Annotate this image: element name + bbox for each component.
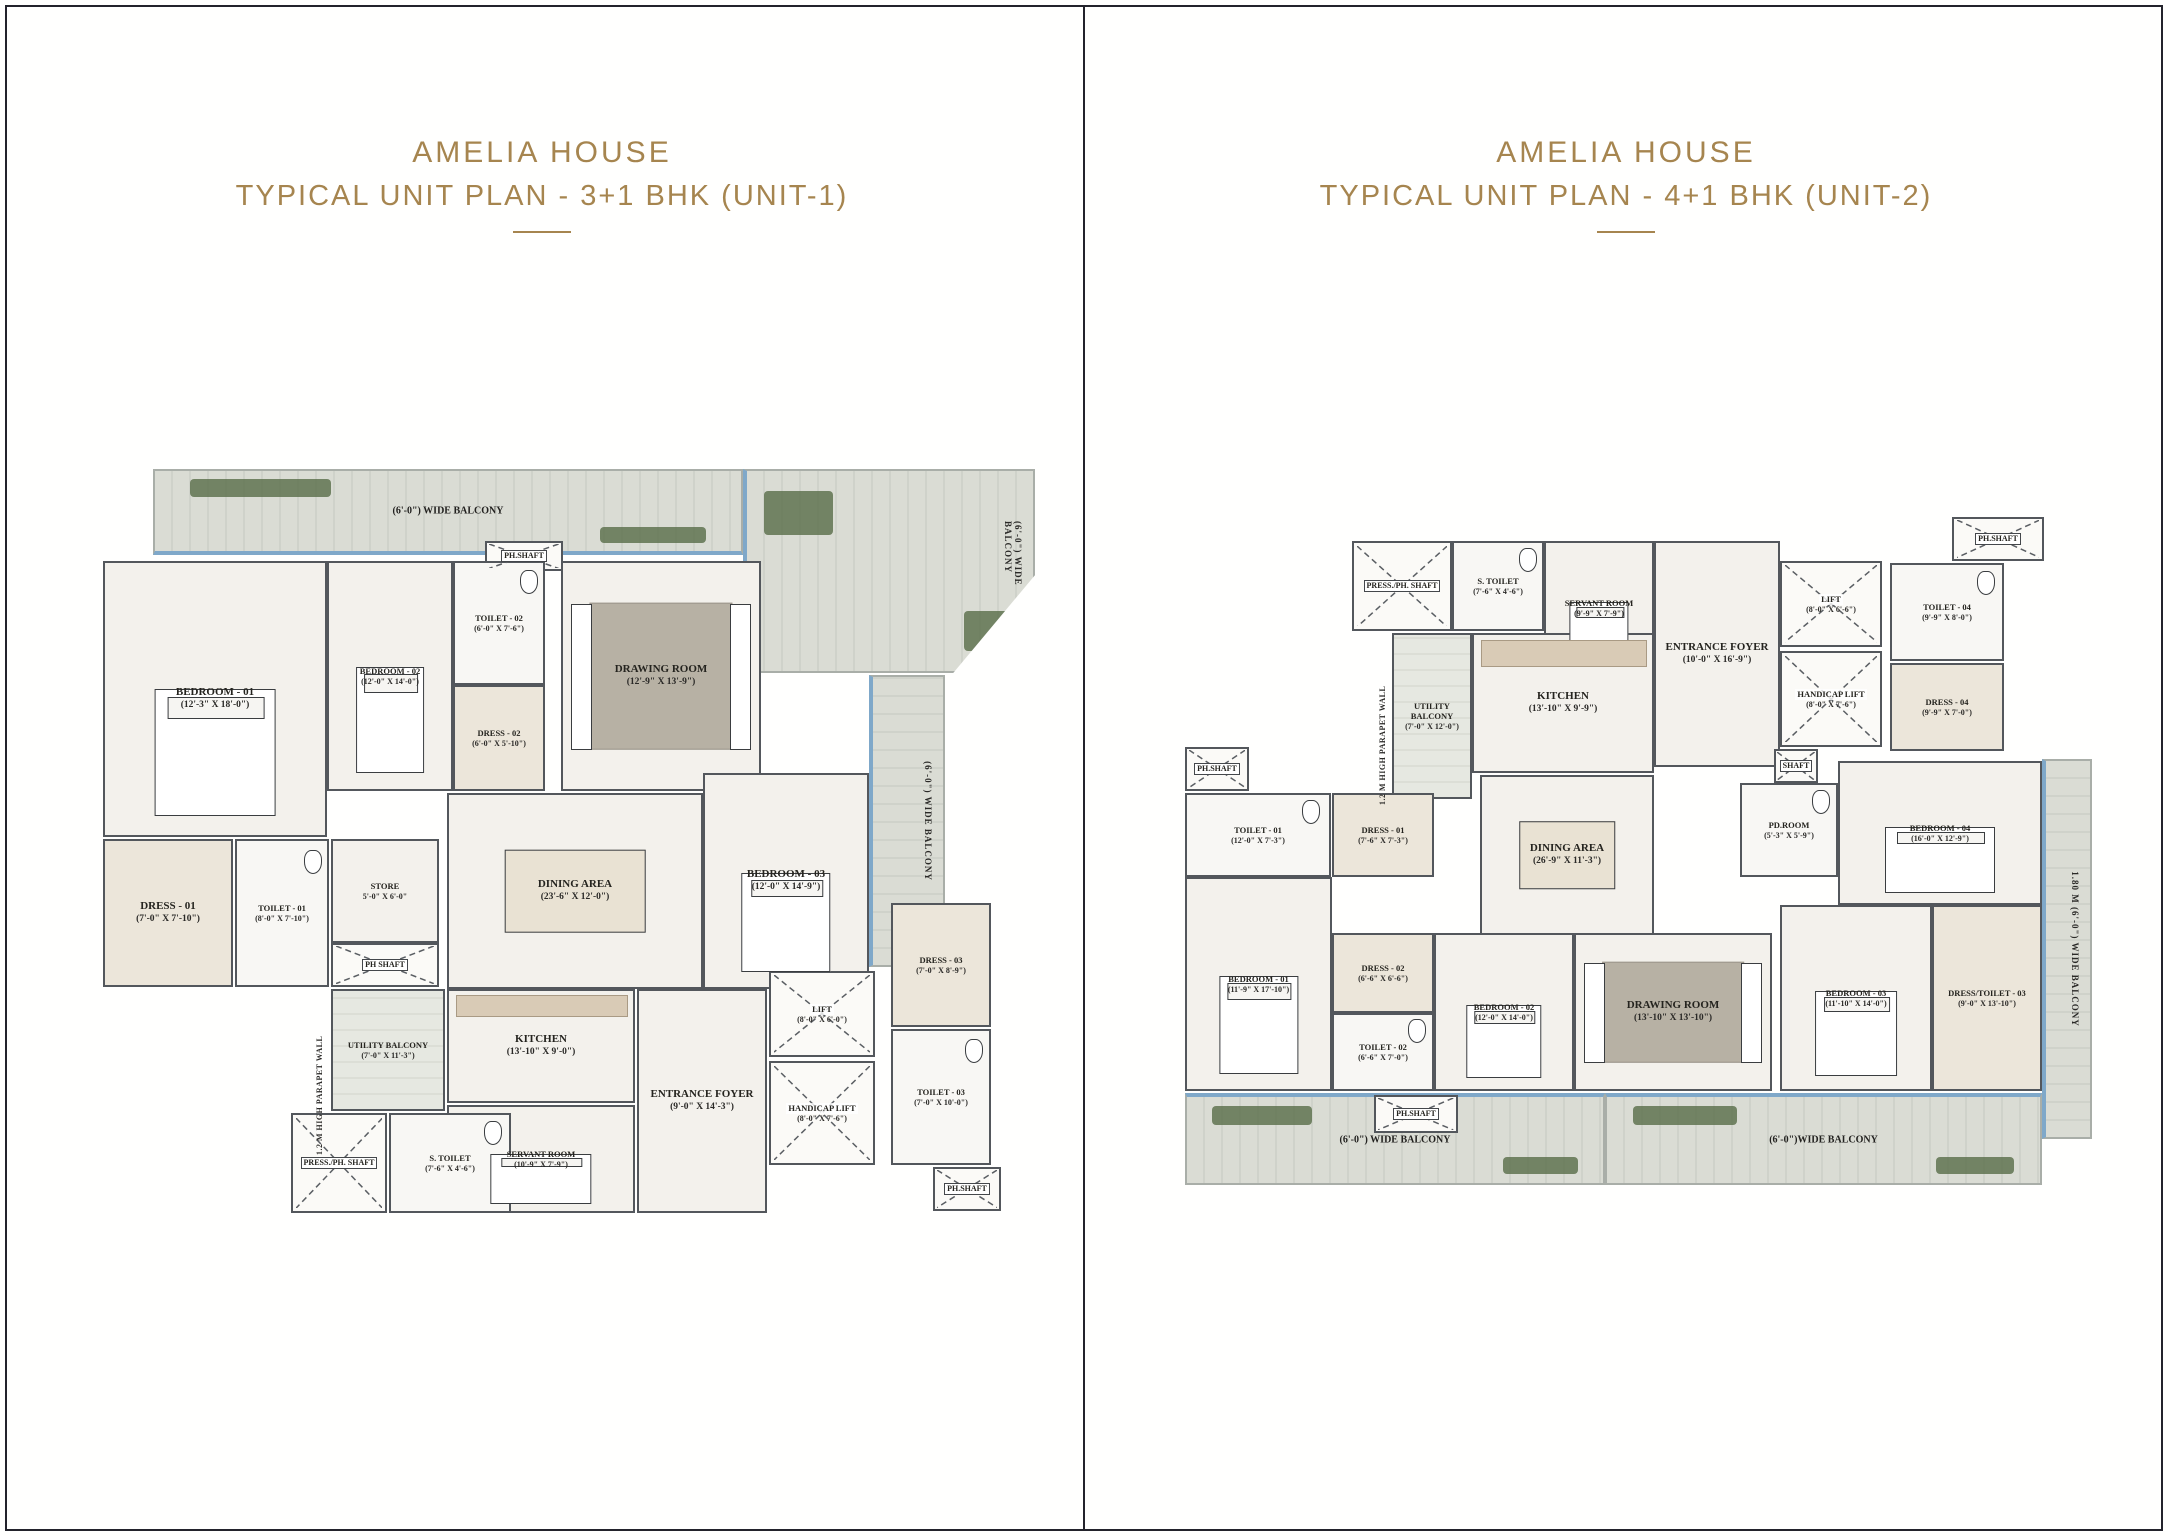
room-dimensions: (10'-9" X 7'-9") xyxy=(514,1160,568,1170)
room-name: TOILET - 02 xyxy=(1359,1042,1407,1053)
planter-icon xyxy=(1212,1106,1312,1125)
room-drawing-room: DRAWING ROOM(13'-10" X 13'-10") xyxy=(1574,933,1772,1091)
toilet-icon xyxy=(520,570,538,594)
room-name: HANDICAP LIFT xyxy=(1795,689,1866,700)
room-name: DRESS - 02 xyxy=(478,728,521,739)
room-handicap-lift: HANDICAP LIFT(8'-0" X 7'-6") xyxy=(1780,651,1882,747)
toilet-icon xyxy=(1977,571,1995,595)
room-dress-02: DRESS - 02(6'-6" X 6'-6") xyxy=(1332,933,1434,1013)
room-dimensions: (8'-0" X 6'-6") xyxy=(1806,605,1856,615)
room-name: SERVANT ROOM xyxy=(1565,598,1634,609)
room-name: DINING AREA xyxy=(538,878,612,892)
sofa-icon xyxy=(1741,963,1762,1064)
room-name: HANDICAP LIFT xyxy=(786,1103,857,1114)
room-dimensions: (10'-0" X 16'-9") xyxy=(1683,655,1752,666)
unit2-header: AMELIA HOUSE TYPICAL UNIT PLAN - 4+1 BHK… xyxy=(1084,136,2168,233)
room-entrance-foyer: ENTRANCE FOYER(10'-0" X 16'-9") xyxy=(1654,541,1780,767)
room-press-ph-shaft: PRESS./PH. SHAFT xyxy=(1352,541,1452,631)
room-name: BEDROOM - 03 xyxy=(747,868,825,882)
room-bedroom-01: BEDROOM - 01(12'-3" X 18'-0") xyxy=(103,561,327,837)
room-name: SHAFT xyxy=(1780,760,1813,772)
balcony-label-vertical: (6'-0") WIDE BALCONY xyxy=(923,761,933,881)
room-dress-01: DRESS - 01(7'-0" X 7'-10") xyxy=(103,839,233,987)
room-name: PD.ROOM xyxy=(1769,820,1810,831)
planter-icon xyxy=(190,479,331,497)
balcony-label: (6'-0") WIDE BALCONY xyxy=(1340,1135,1451,1146)
room-dining-area: DINING AREA(23'-6" X 12'-0") xyxy=(447,793,703,989)
room-ph-shaft: PH.SHAFT xyxy=(1185,747,1249,791)
room-dimensions: (23'-6" X 12'-0") xyxy=(541,892,610,903)
unit1-title: AMELIA HOUSE xyxy=(0,136,1084,170)
kitchen-counter-icon xyxy=(1481,640,1647,666)
brochure-page: { "colors":{"accent_gold":"#a6854f","wal… xyxy=(0,0,2168,1536)
sofa-icon xyxy=(571,604,593,751)
room-name: UTILITY BALCONY xyxy=(1394,701,1470,722)
balcony-deck: (6'-0") WIDE BALCONY xyxy=(153,469,743,555)
planter-icon xyxy=(600,527,705,543)
room-kitchen: KITCHEN(13'-10" X 9'-9") xyxy=(1472,633,1654,773)
room-name: PH.SHAFT xyxy=(501,550,547,562)
room-dimensions: (12'-9" X 13'-9") xyxy=(627,677,696,688)
floorplan-unit2: (6'-0") WIDE BALCONY(6'-0")WIDE BALCONY1… xyxy=(1180,505,2095,1190)
room-name: TOILET - 04 xyxy=(1923,602,1971,613)
room-dimensions: (16'-0" X 12'-9") xyxy=(1911,834,1969,844)
room-drawing-room: DRAWING ROOM(12'-9" X 13'-9") xyxy=(561,561,761,791)
room-name: PH SHAFT xyxy=(362,959,408,971)
room-dimensions: (8'-0" X 7'-6") xyxy=(797,1114,847,1124)
panel-divider xyxy=(1083,5,1085,1531)
room-name: PH.SHAFT xyxy=(1393,1108,1439,1120)
balcony-label: (6'-0") WIDE BALCONY xyxy=(393,506,504,517)
room-press-ph-shaft: PRESS./PH. SHAFT xyxy=(291,1113,387,1213)
room-dimensions: (6'-0" X 5'-10") xyxy=(472,739,526,749)
room-dimensions: (5'-3" X 5'-9") xyxy=(1764,831,1814,841)
room-dimensions: (9'-0" X 14'-3") xyxy=(670,1102,734,1113)
room-pd-room: PD.ROOM(5'-3" X 5'-9") xyxy=(1740,783,1838,877)
room-toilet-01: TOILET - 01(12'-0" X 7'-3") xyxy=(1185,793,1331,877)
room-name: LIFT xyxy=(810,1004,834,1015)
room-dimensions: (6'-0" X 7'-6") xyxy=(474,624,524,634)
room-dimensions: (13'-10" X 9'-0") xyxy=(507,1047,576,1058)
unit1-header: AMELIA HOUSE TYPICAL UNIT PLAN - 3+1 BHK… xyxy=(0,136,1084,233)
parapet-wall-label: 1.2 M HIGH PARAPET WALL xyxy=(315,995,324,1155)
panel-unit1: AMELIA HOUSE TYPICAL UNIT PLAN - 3+1 BHK… xyxy=(0,0,1084,1536)
room-bedroom-02: BEDROOM - 02(12'-0" X 14'-0") xyxy=(327,561,453,791)
balcony-label-vertical: (6'-0") WIDE BALCONY xyxy=(1003,521,1023,621)
room-entrance-foyer: ENTRANCE FOYER(9'-0" X 14'-3") xyxy=(637,989,767,1213)
room-name: TOILET - 01 xyxy=(1234,825,1282,836)
toilet-icon xyxy=(484,1121,502,1145)
toilet-icon xyxy=(1408,1019,1426,1043)
room-name: TOILET - 01 xyxy=(258,903,306,914)
room-dimensions: (7'-6" X 7'-3") xyxy=(1358,836,1408,846)
room-dimensions: (9'-9" X 7'-0") xyxy=(1922,708,1972,718)
toilet-icon xyxy=(1812,790,1830,814)
room-dimensions: (6'-6" X 7'-0") xyxy=(1358,1053,1408,1063)
unit1-subtitle: TYPICAL UNIT PLAN - 3+1 BHK (UNIT-1) xyxy=(0,180,1084,213)
room-dress-02: DRESS - 02(6'-0" X 5'-10") xyxy=(453,685,545,791)
room-dimensions: (11'-9" X 17'-10") xyxy=(1228,985,1289,995)
planter-icon xyxy=(964,611,1015,651)
room-name: PRESS./PH. SHAFT xyxy=(301,1157,378,1169)
room-name: PRESS./PH. SHAFT xyxy=(1364,580,1441,592)
room-name: DINING AREA xyxy=(1530,842,1604,856)
room-dimensions: (13'-10" X 9'-9") xyxy=(1529,704,1598,715)
room-dimensions: (9'-9" X 8'-0") xyxy=(1922,613,1972,623)
room-dimensions: (7'-0" X 7'-10") xyxy=(136,914,200,925)
room-name: S. TOILET xyxy=(1477,576,1518,587)
room-name: BEDROOM - 03 xyxy=(1826,988,1886,999)
room-dimensions: (12'-0" X 14'-0") xyxy=(1475,1013,1533,1023)
sofa-icon xyxy=(730,604,752,751)
room-bedroom-04: BEDROOM - 04(16'-0" X 12'-9") xyxy=(1838,761,2042,905)
room-toilet-01: TOILET - 01(8'-0" X 7'-10") xyxy=(235,839,329,987)
balcony-deck: (6'-0")WIDE BALCONY xyxy=(1605,1093,2042,1185)
room-dimensions: (8'-0" X 6'-0") xyxy=(797,1015,847,1025)
room-toilet-02: TOILET - 02(6'-0" X 7'-6") xyxy=(453,561,545,685)
room-kitchen: KITCHEN(13'-10" X 9'-0") xyxy=(447,989,635,1103)
toilet-icon xyxy=(1519,548,1537,572)
room-dress-03: DRESS - 03(7'-0" X 8'-9") xyxy=(891,903,991,1027)
room-name: DRESS/TOILET - 03 xyxy=(1948,988,2026,999)
room-bedroom-02: BEDROOM - 02(12'-0" X 14'-0") xyxy=(1434,933,1574,1091)
room-dimensions: (7'-6" X 4'-6") xyxy=(1473,587,1523,597)
floorplan-unit1: (6'-0") WIDE BALCONY(6'-0") WIDE BALCONY… xyxy=(95,455,1040,1215)
room-name: TOILET - 02 xyxy=(475,613,523,624)
room-name: ENTRANCE FOYER xyxy=(651,1088,754,1102)
room-name: LIFT xyxy=(1819,594,1843,605)
room-name: KITCHEN xyxy=(1537,690,1589,704)
room-name: DRESS - 04 xyxy=(1926,697,1969,708)
room-dimensions: (12'-3" X 18'-0") xyxy=(181,700,250,711)
room-dress-toilet-03: DRESS/TOILET - 03(9'-0" X 13'-10") xyxy=(1932,905,2042,1091)
room-name: UTILITY BALCONY xyxy=(348,1040,428,1051)
room-name: STORE xyxy=(371,881,400,892)
unit2-title: AMELIA HOUSE xyxy=(1084,136,2168,170)
room-name: S. TOILET xyxy=(429,1153,470,1164)
room-toilet-03: TOILET - 03(7'-0" X 10'-0") xyxy=(891,1029,991,1165)
room-ph-shaft: PH SHAFT xyxy=(331,943,439,987)
room-name: BEDROOM - 01 xyxy=(176,686,254,700)
room-name: DRESS - 01 xyxy=(140,900,196,914)
room-dimensions: (9'-0" X 13'-10") xyxy=(1958,999,2016,1009)
room-name: TOILET - 03 xyxy=(917,1087,965,1098)
planter-icon xyxy=(1936,1157,2014,1174)
room-name: DRESS - 02 xyxy=(1362,963,1405,974)
balcony-label-vertical: 1.80 M (6'-0") WIDE BALCONY xyxy=(2070,871,2080,1027)
panel-unit2: AMELIA HOUSE TYPICAL UNIT PLAN - 4+1 BHK… xyxy=(1084,0,2168,1536)
room-bedroom-03: BEDROOM - 03(11'-10" X 14'-0") xyxy=(1780,905,1932,1091)
room-toilet-02: TOILET - 02(6'-6" X 7'-0") xyxy=(1332,1013,1434,1091)
room-name: DRAWING ROOM xyxy=(1627,999,1720,1013)
room-dimensions: (11'-10" X 14'-0") xyxy=(1825,999,1886,1009)
room-dimensions: (12'-0" X 7'-3") xyxy=(1231,836,1285,846)
toilet-icon xyxy=(965,1039,983,1063)
room-utility-balcony: UTILITY BALCONY(7'-0" X 12'-0") xyxy=(1392,633,1472,799)
room-dimensions: (13'-10" X 13'-10") xyxy=(1634,1013,1712,1024)
room-bedroom-03: BEDROOM - 03(12'-0" X 14'-9") xyxy=(703,773,869,989)
unit1-title-underline xyxy=(513,231,571,233)
room-handicap-lift: HANDICAP LIFT(8'-0" X 7'-6") xyxy=(769,1061,875,1165)
room-dimensions: (7'-0" X 12'-0") xyxy=(1405,722,1459,732)
room-dimensions: (7'-0" X 11'-3") xyxy=(361,1051,414,1061)
room-name: PH.SHAFT xyxy=(1975,533,2021,545)
room-name: DRESS - 01 xyxy=(1362,825,1405,836)
room-ph-shaft: PH.SHAFT xyxy=(1374,1095,1458,1133)
room-name: BEDROOM - 02 xyxy=(360,666,420,677)
balcony-deck: 1.80 M (6'-0") WIDE BALCONY xyxy=(2042,759,2092,1139)
sofa-icon xyxy=(1584,963,1605,1064)
room-dining-area: DINING AREA(26'-9" X 11'-3") xyxy=(1480,775,1654,935)
room-name: DRESS - 03 xyxy=(920,955,963,966)
kitchen-counter-icon xyxy=(456,995,627,1017)
toilet-icon xyxy=(1302,800,1320,824)
room-dimensions: (12'-0" X 14'-9") xyxy=(752,882,821,893)
room-name: BEDROOM - 04 xyxy=(1910,823,1970,834)
room-dimensions: (7'-6" X 4'-6") xyxy=(425,1164,475,1174)
room-name: SERVANT ROOM xyxy=(507,1149,576,1160)
parapet-wall-label: 1.2 M HIGH PARAPET WALL xyxy=(1378,645,1387,805)
room-name: PH.SHAFT xyxy=(944,1183,990,1195)
room-ph-shaft: PH.SHAFT xyxy=(485,541,563,571)
planter-icon xyxy=(764,491,833,535)
room-dimensions: (8'-0" X 7'-6") xyxy=(1806,700,1856,710)
room-name: ENTRANCE FOYER xyxy=(1666,641,1769,655)
room-lift: LIFT(8'-0" X 6'-6") xyxy=(1780,561,1882,647)
room-bedroom-01: BEDROOM - 01(11'-9" X 17'-10") xyxy=(1185,877,1332,1091)
balcony-deck: (6'-0") WIDE BALCONY xyxy=(743,469,1035,673)
room-store: STORE5'-0" X 6'-0" xyxy=(331,839,439,943)
room-name: KITCHEN xyxy=(515,1033,567,1047)
room-ph-shaft: PH.SHAFT xyxy=(933,1167,1001,1211)
room-ph-shaft: PH.SHAFT xyxy=(1952,517,2044,561)
planter-icon xyxy=(1633,1106,1737,1125)
room-name: PH.SHAFT xyxy=(1194,763,1240,775)
room-dimensions: (12'-0" X 14'-0") xyxy=(361,677,419,687)
balcony-label: (6'-0")WIDE BALCONY xyxy=(1769,1135,1878,1146)
unit2-title-underline xyxy=(1597,231,1655,233)
room-lift: LIFT(8'-0" X 6'-0") xyxy=(769,971,875,1057)
room-utility-balcony: UTILITY BALCONY(7'-0" X 11'-3") xyxy=(331,989,445,1111)
toilet-icon xyxy=(304,850,322,874)
room-dimensions: (8'-0" X 7'-10") xyxy=(255,914,309,924)
unit2-subtitle: TYPICAL UNIT PLAN - 4+1 BHK (UNIT-2) xyxy=(1084,180,2168,213)
room-dimensions: (7'-0" X 10'-0") xyxy=(914,1098,968,1108)
planter-icon xyxy=(1503,1157,1578,1174)
room-toilet-04: TOILET - 04(9'-9" X 8'-0") xyxy=(1890,563,2004,661)
room-dimensions: (9'-9" X 7'-9") xyxy=(1574,609,1624,619)
room-dimensions: 5'-0" X 6'-0" xyxy=(363,892,407,902)
room-dimensions: (6'-6" X 6'-6") xyxy=(1358,974,1408,984)
room-dress-01: DRESS - 01(7'-6" X 7'-3") xyxy=(1332,793,1434,877)
room-name: BEDROOM - 01 xyxy=(1228,974,1288,985)
room-shaft: SHAFT xyxy=(1774,749,1818,783)
room-name: DRAWING ROOM xyxy=(615,663,708,677)
room-dimensions: (26'-9" X 11'-3") xyxy=(1533,856,1601,867)
room-dress-04: DRESS - 04(9'-9" X 7'-0") xyxy=(1890,663,2004,751)
room-dimensions: (7'-0" X 8'-9") xyxy=(916,966,966,976)
room-name: BEDROOM - 02 xyxy=(1474,1002,1534,1013)
room-s-toilet: S. TOILET(7'-6" X 4'-6") xyxy=(1452,541,1544,631)
